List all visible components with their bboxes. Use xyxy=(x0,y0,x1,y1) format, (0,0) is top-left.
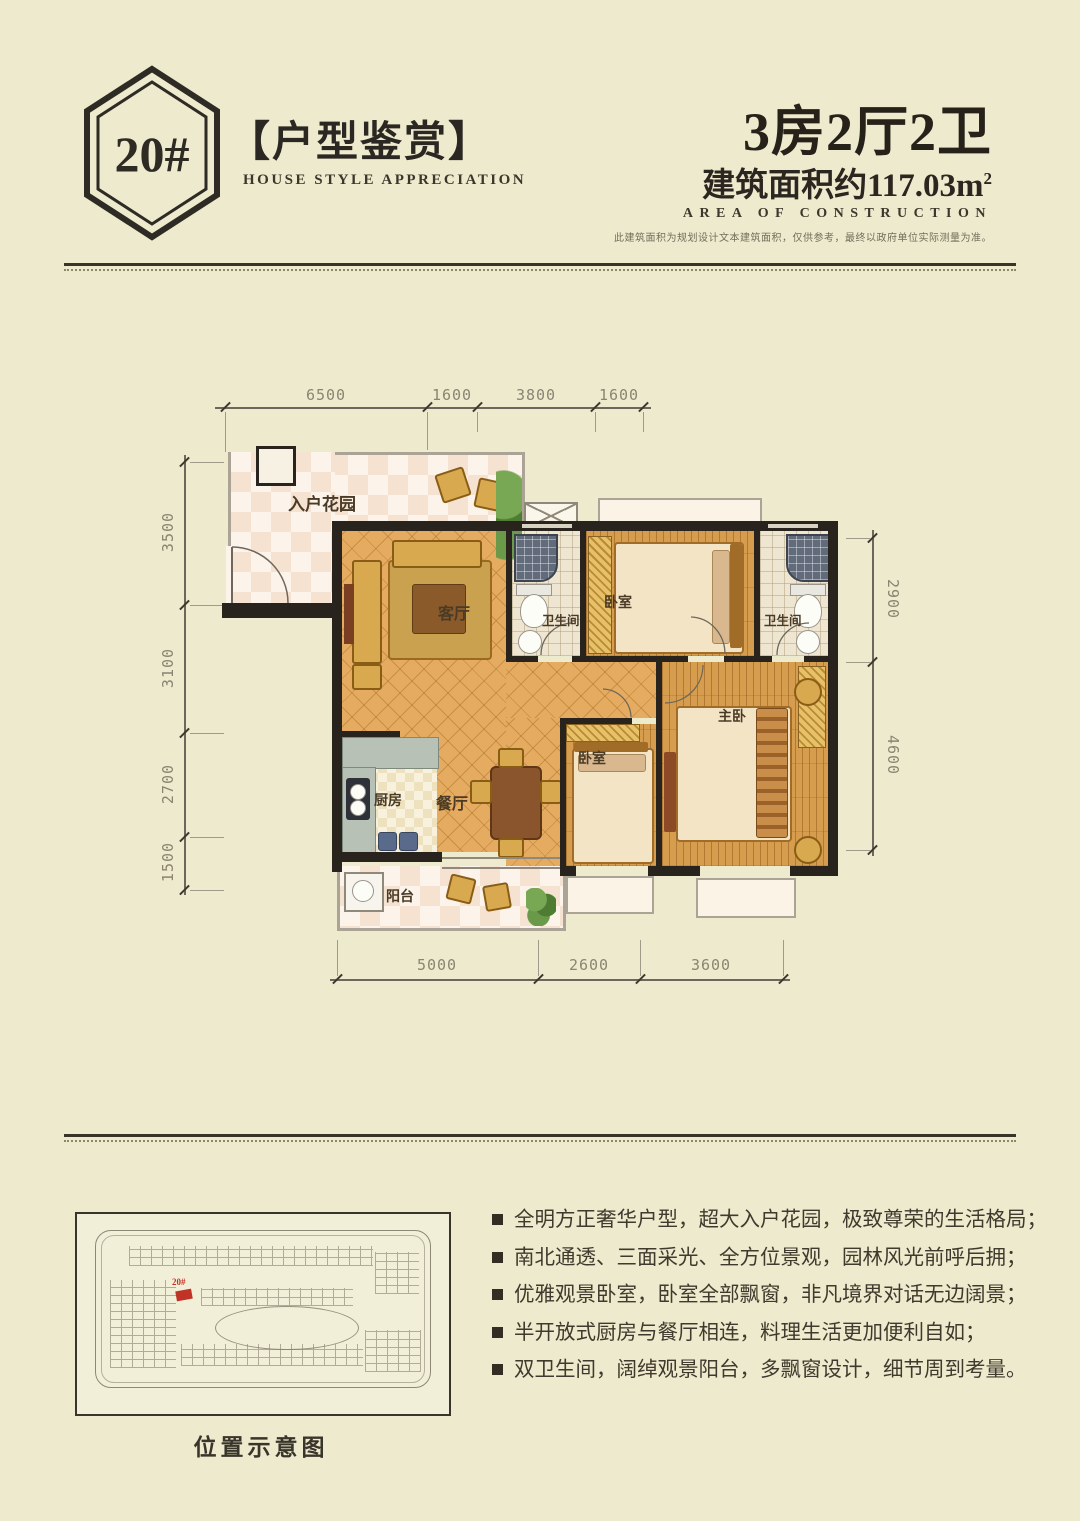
dim-line-bottom xyxy=(330,979,790,981)
wall xyxy=(560,866,576,876)
map-building-cluster xyxy=(201,1288,353,1306)
room-label-bedroom2: 卧室 xyxy=(578,748,606,768)
wall xyxy=(804,656,828,662)
bed-runner xyxy=(756,708,788,838)
wall xyxy=(506,656,538,662)
wall xyxy=(342,731,400,737)
dining-chair xyxy=(540,780,562,804)
kitchen-counter xyxy=(342,737,439,769)
dining-chair xyxy=(498,748,524,768)
room-label-entrance: 入户花园 xyxy=(288,490,356,515)
room-label-living: 客厅 xyxy=(438,600,470,624)
window-slit xyxy=(768,524,818,528)
feature-text: 半开放式厨房与餐厅相连，料理生活更加便利自如； xyxy=(514,1321,986,1346)
room-label-balcony: 阳台 xyxy=(386,886,414,906)
dim-label: 4600 xyxy=(884,729,902,781)
wall xyxy=(222,603,336,618)
room-label-dining: 餐厅 xyxy=(436,790,468,814)
bedroom1-door-arc xyxy=(690,616,726,654)
dim-extension xyxy=(190,733,224,734)
wall xyxy=(332,852,442,862)
dim-label: 2900 xyxy=(884,573,902,625)
dim-extension xyxy=(846,538,870,539)
feature-item: 全明方正奢华户型，超大入户花园，极致尊荣的生活格局； xyxy=(492,1208,1032,1233)
sofa xyxy=(392,540,482,568)
feature-text: 全明方正奢华户型，超大入户花园，极致尊荣的生活格局； xyxy=(514,1208,1047,1233)
building-number-badge: 20# xyxy=(82,64,222,242)
dim-extension xyxy=(643,412,644,432)
wall xyxy=(572,656,688,662)
map-building-cluster xyxy=(129,1246,373,1266)
room-label-bedroom1: 卧室 xyxy=(604,592,632,612)
dining-table xyxy=(490,766,542,840)
dim-extension xyxy=(477,412,478,432)
dim-label: 3600 xyxy=(685,956,737,974)
flyer-page: 20# 【户型鉴赏】 HOUSE STYLE APPRECIATION 3房2厅… xyxy=(0,0,1080,1521)
shower xyxy=(514,534,558,582)
dim-label: 6500 xyxy=(300,386,352,404)
bedroom2-door-arc xyxy=(602,688,632,718)
entry-door-arc xyxy=(231,546,289,604)
wall xyxy=(656,662,662,866)
wall xyxy=(754,531,760,656)
wall xyxy=(332,531,342,872)
wall xyxy=(724,656,772,662)
feature-item: 半开放式厨房与餐厅相连，料理生活更加便利自如； xyxy=(492,1321,1032,1346)
entry-column xyxy=(256,446,296,486)
dresser xyxy=(664,752,676,832)
washing-machine-door xyxy=(352,880,374,902)
dim-label: 1600 xyxy=(593,386,645,404)
bullet-square-icon xyxy=(492,1327,503,1338)
kitchen-appliance xyxy=(399,832,418,851)
wall xyxy=(332,521,838,531)
wall xyxy=(648,866,700,876)
room-label-bath2: 卫生间 xyxy=(764,610,802,629)
area-prefix: 建筑面积约 xyxy=(702,168,867,204)
balcony-chair xyxy=(482,882,512,912)
dim-label: 2600 xyxy=(563,956,615,974)
dim-label: 2700 xyxy=(159,758,177,810)
area-line: 建筑面积约117.03m2 xyxy=(600,169,992,204)
room-label-master: 主卧 xyxy=(718,706,746,726)
bullet-square-icon xyxy=(492,1252,503,1263)
dim-extension xyxy=(427,412,428,450)
map-building-cluster xyxy=(181,1344,363,1366)
nightstand xyxy=(794,836,822,864)
feature-item: 双卫生间，阔绰观景阳台，多飘窗设计，细节周到考量。 xyxy=(492,1358,1032,1383)
dim-extension xyxy=(846,662,870,663)
wardrobe xyxy=(566,724,640,742)
divider-bottom xyxy=(64,1134,1016,1142)
map-building-cluster xyxy=(365,1330,421,1372)
bullet-square-icon xyxy=(492,1364,503,1375)
bullet-square-icon xyxy=(492,1289,503,1300)
dim-extension xyxy=(190,605,224,606)
bay-window-master xyxy=(696,878,796,918)
window-slit xyxy=(522,524,572,528)
unit-type: 3房2厅2卫 xyxy=(600,104,992,161)
area-sup: 2 xyxy=(984,169,993,188)
dim-extension xyxy=(640,940,641,976)
feature-text: 南北通透、三面采光、全方位景观，园林风光前呼后拥； xyxy=(514,1246,1027,1271)
dim-label: 5000 xyxy=(411,956,463,974)
dim-line-left xyxy=(184,455,186,895)
room-label-bath1: 卫生间 xyxy=(542,610,580,629)
wall xyxy=(560,718,566,866)
location-map: 20# xyxy=(75,1212,451,1416)
feature-item: 南北通透、三面采光、全方位景观，园林风光前呼后拥； xyxy=(492,1246,1032,1271)
map-caption: 位置示意图 xyxy=(75,1428,447,1462)
feature-text: 双卫生间，阔绰观景阳台，多飘窗设计，细节周到考量。 xyxy=(514,1358,1027,1383)
wall xyxy=(580,531,586,656)
nightstand xyxy=(794,678,822,706)
stove-burner xyxy=(350,784,366,800)
dim-extension xyxy=(846,850,870,851)
stove-burner xyxy=(350,800,366,816)
feature-list: 全明方正奢华户型，超大入户花园，极致尊荣的生活格局； 南北通透、三面采光、全方位… xyxy=(492,1208,1032,1396)
area-disclaimer: 此建筑面积为规划设计文本建筑面积，仅供参考，最终以政府单位实际测量为准。 xyxy=(600,229,992,244)
kitchen-appliance xyxy=(378,832,397,851)
balcony-slider-window xyxy=(442,857,560,869)
dining-chair xyxy=(470,780,492,804)
page-title: 【户型鉴赏】 xyxy=(228,108,492,169)
dim-extension xyxy=(190,890,224,891)
room-label-kitchen: 厨房 xyxy=(374,790,402,810)
map-building-cluster xyxy=(110,1280,176,1368)
dim-label: 1500 xyxy=(159,836,177,888)
dining-chair xyxy=(498,838,524,858)
wall xyxy=(566,718,632,724)
bed-headboard xyxy=(730,544,742,648)
wall xyxy=(790,866,838,876)
badge-label: 20# xyxy=(115,126,190,182)
area-label-en: AREA OF CONSTRUCTION xyxy=(600,206,992,222)
header-right: 3房2厅2卫 建筑面积约117.03m2 AREA OF CONSTRUCTIO… xyxy=(600,104,992,244)
dim-line-top xyxy=(215,407,651,409)
area-value: 117.03m xyxy=(867,168,983,204)
dim-line-right xyxy=(872,530,874,856)
divider-top xyxy=(64,263,1016,271)
master-door-arc xyxy=(664,664,704,704)
bath-sink xyxy=(518,630,542,654)
map-building-cluster xyxy=(375,1252,419,1294)
bay-window-bedroom2 xyxy=(566,876,654,914)
dim-label: 3500 xyxy=(159,506,177,558)
shower xyxy=(786,534,830,582)
dim-label: 3100 xyxy=(159,642,177,694)
dim-extension xyxy=(538,940,539,976)
tv-cabinet xyxy=(344,584,354,644)
dim-extension xyxy=(190,462,224,463)
balcony-plant xyxy=(526,888,556,926)
dim-label: 1600 xyxy=(426,386,478,404)
dim-label: 3800 xyxy=(510,386,562,404)
map-marker-label: 20# xyxy=(172,1277,186,1287)
feature-item: 优雅观景卧室，卧室全部飘窗，非凡境界对话无边阔景； xyxy=(492,1283,1032,1308)
dim-extension xyxy=(595,412,596,432)
sofa-side-table xyxy=(352,664,382,690)
dim-extension xyxy=(225,412,226,452)
dim-extension xyxy=(783,940,784,976)
page-subtitle: HOUSE STYLE APPRECIATION xyxy=(243,172,526,189)
wall xyxy=(506,531,512,656)
dim-extension xyxy=(190,837,224,838)
hall-floor xyxy=(506,662,656,718)
bullet-square-icon xyxy=(492,1214,503,1225)
wall xyxy=(828,531,838,872)
sofa xyxy=(352,560,382,664)
dim-extension xyxy=(337,940,338,976)
feature-text: 优雅观景卧室，卧室全部飘窗，非凡境界对话无边阔景； xyxy=(514,1283,1027,1308)
